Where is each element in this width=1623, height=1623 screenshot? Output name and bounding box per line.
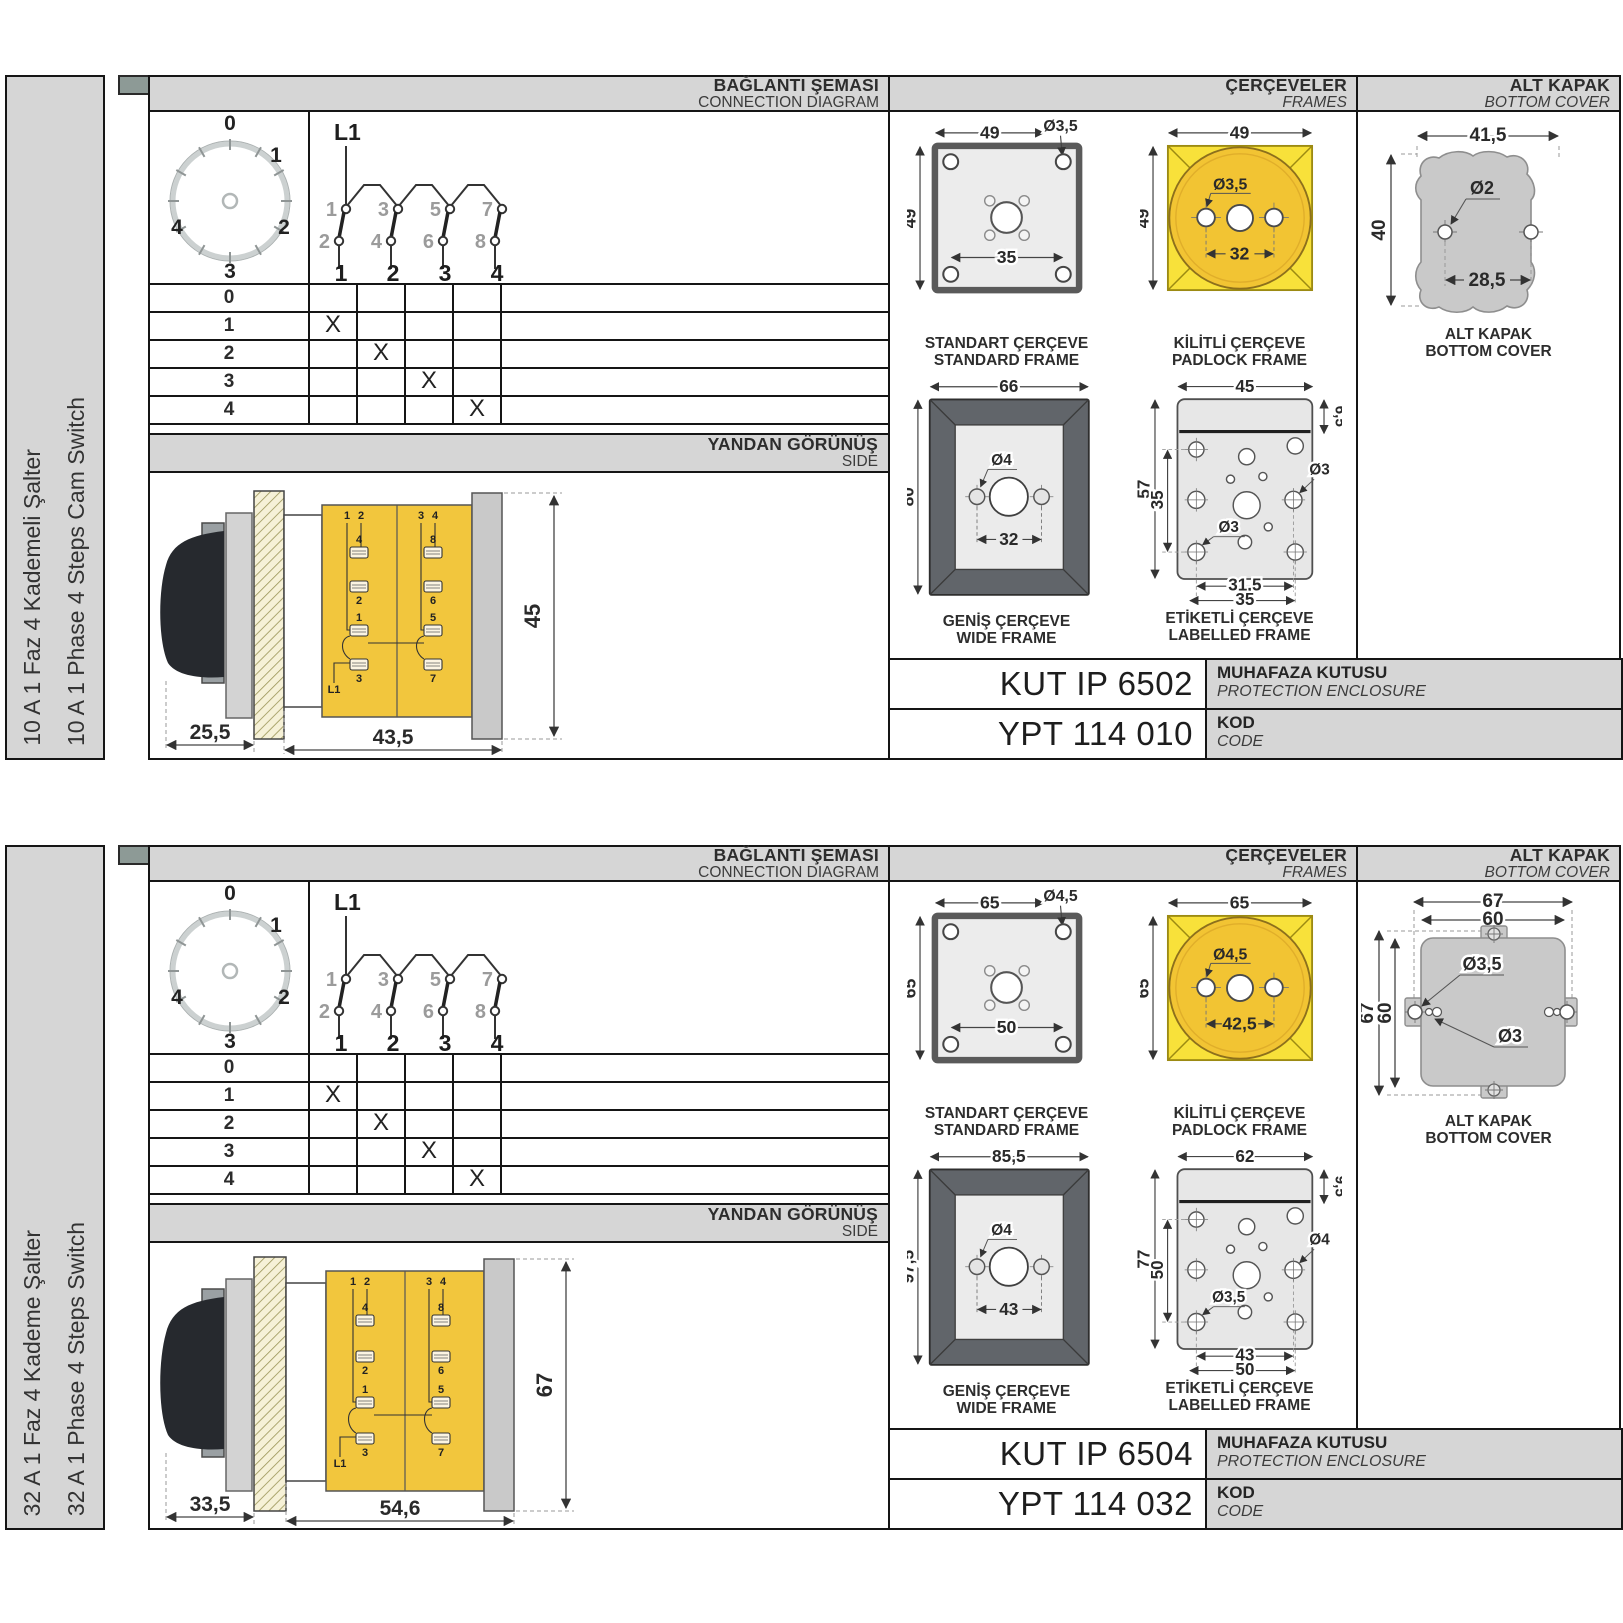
terminal-6: 6 bbox=[423, 1001, 434, 1023]
terminal-8: 8 bbox=[475, 1001, 486, 1023]
caption-tr: KİLİTLİ ÇERÇEVE bbox=[1172, 1105, 1307, 1122]
mark-cell bbox=[358, 313, 406, 339]
enclosure-code: KUT IP 6502 bbox=[888, 658, 1207, 710]
labelled-frame-cell: 62 9,5 77 50 bbox=[1137, 1144, 1342, 1418]
dim-hole-span: 28,5 bbox=[1469, 270, 1506, 291]
dim-hole-label: Ø2 bbox=[1470, 178, 1494, 198]
mark-cell bbox=[454, 313, 502, 339]
mark-cell bbox=[406, 397, 454, 423]
filler-cell bbox=[502, 285, 888, 311]
column-headers: BAĞLANTI ŞEMASI CONNECTION DIAGRAM ÇERÇE… bbox=[148, 845, 1623, 882]
terminal-2: 2 bbox=[319, 1001, 330, 1023]
mark-cell bbox=[310, 341, 358, 367]
mark-cell bbox=[454, 285, 502, 311]
mark-cell bbox=[358, 285, 406, 311]
product-code: YPT 114 010 bbox=[888, 708, 1207, 760]
dim-frame-width: 49 bbox=[1229, 122, 1249, 142]
dim-bottom-2: 50 bbox=[1235, 1360, 1254, 1379]
header-cover-en: BOTTOM COVER bbox=[1485, 865, 1610, 882]
mark-cell bbox=[454, 1139, 502, 1165]
phase-label: L1 bbox=[334, 119, 361, 145]
block-label-l1: L1 bbox=[334, 1458, 347, 1470]
bottom-cover-area: 67 60 67 60 bbox=[1356, 880, 1621, 1430]
product-code-row: YPT 114 010 KOD CODE bbox=[888, 708, 1623, 760]
table-row: 1X bbox=[150, 1083, 888, 1111]
enclosure-code-row: KUT IP 6502 MUHAFAZA KUTUSU PROTECTION E… bbox=[888, 658, 1623, 710]
position-2: 2 bbox=[387, 260, 400, 283]
side-view-area: 1 2 3 4 4 2 1 3 8 6 5 7 L1 bbox=[150, 1243, 888, 1526]
side-view-header: YANDAN GÖRÜNÜŞ SIDE bbox=[150, 1203, 888, 1243]
mark-cell bbox=[406, 1111, 454, 1137]
dim-inner: 32 bbox=[1229, 243, 1249, 263]
dim-top-band: 9,5 bbox=[1332, 1175, 1342, 1197]
filler-cell bbox=[502, 1167, 888, 1193]
connection-diagram-area: 0 1 2 3 4 L1 bbox=[148, 110, 890, 760]
mark-cell bbox=[406, 1083, 454, 1109]
frame-caption: ETİKETLİ ÇERÇEVE LABELLED FRAME bbox=[1165, 610, 1313, 645]
header-conn-tr: BAĞLANTI ŞEMASI bbox=[714, 76, 879, 95]
filler-cell bbox=[502, 397, 888, 423]
dim-inner: 43 bbox=[999, 1298, 1018, 1318]
mark-cell: X bbox=[310, 313, 358, 339]
corner-marker bbox=[118, 845, 150, 865]
header-connection-diagram: BAĞLANTI ŞEMASI CONNECTION DIAGRAM bbox=[148, 845, 890, 882]
terminal-7: 7 bbox=[482, 969, 493, 991]
product-code: YPT 114 032 bbox=[888, 1478, 1207, 1530]
terminal-1: 1 bbox=[326, 969, 337, 991]
block-label: 4 bbox=[356, 534, 363, 546]
mark-cell bbox=[310, 1167, 358, 1193]
mark-cell bbox=[358, 1083, 406, 1109]
block-label: 5 bbox=[430, 612, 436, 624]
caption-en: PADLOCK FRAME bbox=[1172, 352, 1307, 369]
caption-tr: ETİKETLİ ÇERÇEVE bbox=[1165, 1380, 1313, 1397]
dim-hole-span: 35 bbox=[1148, 489, 1167, 508]
terminal-8: 8 bbox=[475, 231, 486, 253]
dim-frame-width: 62 bbox=[1235, 1147, 1254, 1166]
standard-frame-cell: 49 Ø3,5 49 bbox=[907, 118, 1107, 370]
row-label: 0 bbox=[150, 1055, 310, 1081]
column-headers: BAĞLANTI ŞEMASI CONNECTION DIAGRAM ÇERÇE… bbox=[148, 75, 1623, 112]
row-label: 1 bbox=[150, 313, 310, 339]
caption-tr: KİLİTLİ ÇERÇEVE bbox=[1172, 335, 1307, 352]
row-label: 2 bbox=[150, 341, 310, 367]
header-conn-en: CONNECTION DIAGRAM bbox=[698, 865, 879, 882]
filler-cell bbox=[502, 1139, 888, 1165]
block-label: 2 bbox=[362, 1365, 368, 1377]
standard-frame-drawing: 65 Ø4,5 65 bbox=[907, 888, 1107, 1104]
dim-frame-width: 45 bbox=[1235, 377, 1254, 396]
contact-diagram-drawing: L1 bbox=[310, 882, 886, 1053]
section-content: 0 1 2 3 4 L1 bbox=[148, 110, 1623, 760]
dim-cover-height: 40 bbox=[1369, 219, 1390, 240]
standard-frame-cell: 65 Ø4,5 65 bbox=[907, 888, 1107, 1140]
header-frames-en: FRAMES bbox=[1282, 95, 1347, 112]
dim-hole-right: Ø3 bbox=[1309, 461, 1329, 478]
frame-caption: GENİŞ ÇERÇEVE WIDE FRAME bbox=[943, 1383, 1070, 1418]
header-bottom-cover: ALT KAPAK BOTTOM COVER bbox=[1356, 845, 1621, 882]
table-row: 0 bbox=[150, 285, 888, 313]
side-header-en: SIDE bbox=[842, 1224, 878, 1241]
block-label: 7 bbox=[438, 1447, 444, 1459]
product-code-row: YPT 114 032 KOD CODE bbox=[888, 1478, 1623, 1530]
wide-frame-drawing: 85,5 97,5 bbox=[907, 1144, 1107, 1382]
dim-frame-height: 65 bbox=[907, 978, 919, 998]
contact-diagram-drawing: L1 bbox=[310, 112, 886, 283]
caption-en: BOTTOM COVER bbox=[1425, 343, 1551, 360]
header-frames-tr: ÇERÇEVELER bbox=[1225, 76, 1347, 95]
block-label: 1 bbox=[356, 612, 362, 624]
caption-en: PADLOCK FRAME bbox=[1172, 1122, 1307, 1139]
block-label: 7 bbox=[430, 673, 436, 685]
bottom-cover-drawing: 41,5 40 Ø2 bbox=[1361, 120, 1616, 325]
dim-inner: 35 bbox=[996, 247, 1016, 267]
terminal-3: 3 bbox=[378, 199, 389, 221]
position-3: 3 bbox=[439, 260, 452, 283]
position-table: 0 1X 2X 3X 4X bbox=[150, 1055, 888, 1195]
block-label: 2 bbox=[364, 1276, 370, 1288]
corner-marker bbox=[118, 75, 150, 95]
position-4: 4 bbox=[491, 1030, 504, 1053]
dim-hole-label: Ø4,5 bbox=[1043, 888, 1077, 905]
position-1: 1 bbox=[335, 1030, 348, 1053]
filler-cell bbox=[502, 1083, 888, 1109]
side-header-tr: YANDAN GÖRÜNÜŞ bbox=[708, 435, 878, 454]
section-content: 0 1 2 3 4 L1 bbox=[148, 880, 1623, 1530]
position-2: 2 bbox=[387, 1030, 400, 1053]
mark-cell bbox=[454, 1111, 502, 1137]
padlock-frame-drawing: 49 49 Ø3 bbox=[1140, 118, 1340, 334]
header-cover-tr: ALT KAPAK bbox=[1510, 76, 1610, 95]
product-sidebar: 32 A 1 Faz 4 Kademe Şalter 32 A 1 Phase … bbox=[5, 845, 105, 1530]
terminal-3: 3 bbox=[378, 969, 389, 991]
mark-cell: X bbox=[454, 397, 502, 423]
mark-cell bbox=[310, 397, 358, 423]
rotary-dial-box: 0 1 2 3 4 bbox=[150, 112, 310, 283]
row-label: 0 bbox=[150, 285, 310, 311]
dial-label-2: 2 bbox=[278, 216, 290, 239]
table-row: 0 bbox=[150, 1055, 888, 1083]
dim-hole-span: 50 bbox=[1148, 1260, 1167, 1279]
caption-en: STANDARD FRAME bbox=[925, 1122, 1088, 1139]
caption-tr: GENİŞ ÇERÇEVE bbox=[943, 1383, 1070, 1400]
datasheet-page: 10 A 1 Faz 4 Kademeli Şalter 10 A 1 Phas… bbox=[0, 0, 1623, 1623]
caption-tr: ALT KAPAK bbox=[1425, 326, 1551, 343]
row-label: 2 bbox=[150, 1111, 310, 1137]
dial-label-0: 0 bbox=[224, 112, 236, 135]
dim-hole1-label: Ø3,5 bbox=[1462, 954, 1501, 974]
wide-frame-cell: 66 80 bbox=[907, 374, 1107, 648]
block-label: 8 bbox=[430, 534, 436, 546]
dial-label-3: 3 bbox=[224, 260, 236, 283]
row-label: 4 bbox=[150, 1167, 310, 1193]
table-row: 2X bbox=[150, 341, 888, 369]
mark-cell bbox=[406, 1167, 454, 1193]
table-row: 3X bbox=[150, 1139, 888, 1167]
dim-frame-width: 85,5 bbox=[992, 1146, 1026, 1166]
dim-hole-label: Ø4 bbox=[991, 451, 1012, 468]
mark-cell bbox=[310, 1111, 358, 1137]
dim-hole2-label: Ø3 bbox=[1498, 1026, 1522, 1046]
caption-en: WIDE FRAME bbox=[943, 1400, 1070, 1417]
rotary-dial-drawing: 0 1 2 3 4 bbox=[150, 112, 310, 283]
product-section-32a: 32 A 1 Faz 4 Kademe Şalter 32 A 1 Phase … bbox=[5, 845, 1623, 1530]
mark-cell bbox=[454, 341, 502, 367]
mark-cell bbox=[358, 1055, 406, 1081]
diagram-row: 0 1 2 3 4 L1 bbox=[150, 882, 888, 1055]
cover-caption: ALT KAPAK BOTTOM COVER bbox=[1425, 326, 1551, 361]
block-label: 4 bbox=[440, 1276, 447, 1288]
side-view-drawing: 1 2 3 4 4 2 1 3 8 6 5 7 L1 bbox=[150, 473, 888, 756]
code-label-tr: KOD bbox=[1217, 1483, 1621, 1503]
bottom-cover-drawing: 67 60 67 60 bbox=[1361, 890, 1616, 1112]
enclosure-label-en: PROTECTION ENCLOSURE bbox=[1217, 683, 1621, 701]
dial-label-1: 1 bbox=[270, 914, 282, 937]
caption-en: STANDARD FRAME bbox=[925, 352, 1088, 369]
mark-cell: X bbox=[358, 341, 406, 367]
dial-label-2: 2 bbox=[278, 986, 290, 1009]
header-frames: ÇERÇEVELER FRAMES bbox=[888, 845, 1358, 882]
header-conn-tr: BAĞLANTI ŞEMASI bbox=[714, 846, 879, 865]
header-cover-en: BOTTOM COVER bbox=[1485, 95, 1610, 112]
right-columns: 65 Ø4,5 65 bbox=[888, 880, 1623, 1530]
block-label: 1 bbox=[362, 1384, 368, 1396]
standard-frame-drawing: 49 Ø3,5 49 bbox=[907, 118, 1107, 334]
enclosure-code-row: KUT IP 6504 MUHAFAZA KUTUSU PROTECTION E… bbox=[888, 1428, 1623, 1480]
code-label-tr: KOD bbox=[1217, 713, 1621, 733]
dim-frame-width: 65 bbox=[1229, 892, 1249, 912]
caption-tr: GENİŞ ÇERÇEVE bbox=[943, 613, 1070, 630]
block-label: 6 bbox=[438, 1365, 444, 1377]
block-label: 3 bbox=[362, 1447, 368, 1459]
frame-caption: ETİKETLİ ÇERÇEVE LABELLED FRAME bbox=[1165, 1380, 1313, 1415]
mark-cell: X bbox=[310, 1083, 358, 1109]
code-label-en: CODE bbox=[1217, 733, 1621, 751]
side-header-en: SIDE bbox=[842, 454, 878, 471]
frame-caption: KİLİTLİ ÇERÇEVE PADLOCK FRAME bbox=[1172, 1105, 1307, 1140]
terminal-2: 2 bbox=[319, 231, 330, 253]
dial-label-1: 1 bbox=[270, 144, 282, 167]
section-main: BAĞLANTI ŞEMASI CONNECTION DIAGRAM ÇERÇE… bbox=[148, 75, 1623, 760]
filler-cell bbox=[502, 1111, 888, 1137]
header-connection-diagram: BAĞLANTI ŞEMASI CONNECTION DIAGRAM bbox=[148, 75, 890, 112]
cover-caption: ALT KAPAK BOTTOM COVER bbox=[1425, 1113, 1551, 1148]
block-label: 3 bbox=[356, 673, 362, 685]
header-bottom-cover: ALT KAPAK BOTTOM COVER bbox=[1356, 75, 1621, 112]
frame-caption: STANDART ÇERÇEVE STANDARD FRAME bbox=[925, 335, 1088, 370]
mark-cell bbox=[310, 1055, 358, 1081]
dim-hole-label: Ø4 bbox=[991, 1221, 1012, 1238]
table-row: 4X bbox=[150, 397, 888, 425]
filler-cell bbox=[502, 1055, 888, 1081]
caption-tr: ETİKETLİ ÇERÇEVE bbox=[1165, 610, 1313, 627]
frame-caption: KİLİTLİ ÇERÇEVE PADLOCK FRAME bbox=[1172, 335, 1307, 370]
header-frames-tr: ÇERÇEVELER bbox=[1225, 846, 1347, 865]
side-view-area: 1 2 3 4 4 2 1 3 8 6 5 7 L1 bbox=[150, 473, 888, 756]
bottom-cover-area: 41,5 40 Ø2 bbox=[1356, 110, 1621, 660]
code-label-en: CODE bbox=[1217, 1503, 1621, 1521]
row-label: 4 bbox=[150, 397, 310, 423]
dim-hole-bottom: Ø3,5 bbox=[1212, 1289, 1246, 1306]
side-view-drawing: 1 2 3 4 4 2 1 3 8 6 5 7 L1 bbox=[150, 1243, 888, 1526]
mark-cell bbox=[454, 1083, 502, 1109]
block-label-l1: L1 bbox=[328, 684, 341, 696]
mark-cell: X bbox=[406, 369, 454, 395]
dim-hole-right: Ø4 bbox=[1309, 1231, 1330, 1248]
dim-frame-height: 97,5 bbox=[907, 1249, 917, 1283]
header-cover-tr: ALT KAPAK bbox=[1510, 846, 1610, 865]
filler-cell bbox=[502, 313, 888, 339]
block-label: 2 bbox=[356, 595, 362, 607]
terminal-1: 1 bbox=[326, 199, 337, 221]
product-name-en: 32 A 1 Phase 4 Steps Switch bbox=[63, 1222, 90, 1516]
diagram-row: 0 1 2 3 4 L1 bbox=[150, 112, 888, 285]
dim-handle: 33,5 bbox=[190, 1493, 231, 1516]
block-label: 2 bbox=[358, 510, 364, 522]
dim-frame-width: 49 bbox=[979, 122, 999, 142]
terminal-5: 5 bbox=[430, 199, 441, 221]
frame-caption: GENİŞ ÇERÇEVE WIDE FRAME bbox=[943, 613, 1070, 648]
connection-diagram-area: 0 1 2 3 4 L1 bbox=[148, 880, 890, 1530]
mark-cell: X bbox=[454, 1167, 502, 1193]
block-label: 3 bbox=[418, 510, 424, 522]
dim-bottom-2: 35 bbox=[1235, 590, 1254, 609]
mark-cell bbox=[406, 1055, 454, 1081]
table-row: 4X bbox=[150, 1167, 888, 1195]
dim-height: 45 bbox=[520, 604, 545, 628]
section-main: BAĞLANTI ŞEMASI CONNECTION DIAGRAM ÇERÇE… bbox=[148, 845, 1623, 1530]
mark-cell bbox=[358, 1167, 406, 1193]
dim-body: 54,6 bbox=[380, 1497, 421, 1520]
wide-frame-drawing: 66 80 bbox=[907, 374, 1107, 612]
caption-tr: STANDART ÇERÇEVE bbox=[925, 335, 1088, 352]
dim-body: 43,5 bbox=[373, 726, 414, 749]
dim-inner: 32 bbox=[999, 528, 1018, 548]
position-table: 0 1X 2X 3X 4X bbox=[150, 285, 888, 425]
product-name-en: 10 A 1 Phase 4 Steps Cam Switch bbox=[63, 397, 90, 746]
dim-inner: 50 bbox=[996, 1017, 1016, 1037]
contact-diagram-box: L1 bbox=[310, 882, 888, 1053]
dial-label-0: 0 bbox=[224, 882, 236, 905]
dim-hole-label: Ø3,5 bbox=[1043, 118, 1077, 135]
labelled-frame-drawing: 62 9,5 77 50 bbox=[1137, 1144, 1342, 1380]
terminal-7: 7 bbox=[482, 199, 493, 221]
filler-cell bbox=[502, 369, 888, 395]
row-label: 1 bbox=[150, 1083, 310, 1109]
block-label: 8 bbox=[438, 1302, 444, 1314]
terminal-6: 6 bbox=[423, 231, 434, 253]
mark-cell bbox=[358, 369, 406, 395]
mark-cell bbox=[358, 1139, 406, 1165]
block-label: 3 bbox=[426, 1276, 432, 1288]
labelled-frame-drawing: 45 6,5 57 35 bbox=[1137, 374, 1342, 610]
row-label: 3 bbox=[150, 369, 310, 395]
table-row: 3X bbox=[150, 369, 888, 397]
rotary-dial-drawing: 0 1 2 3 4 bbox=[150, 882, 310, 1053]
dim-frame-height: 49 bbox=[1140, 208, 1152, 228]
dim-hole-bottom: Ø3 bbox=[1219, 519, 1239, 536]
header-frames: ÇERÇEVELER FRAMES bbox=[888, 75, 1358, 112]
filler-cell bbox=[502, 341, 888, 367]
terminal-4: 4 bbox=[371, 231, 383, 253]
product-name-tr: 32 A 1 Faz 4 Kademe Şalter bbox=[19, 1230, 46, 1516]
enclosure-label: MUHAFAZA KUTUSU PROTECTION ENCLOSURE bbox=[1205, 1428, 1623, 1480]
mark-cell bbox=[310, 369, 358, 395]
dial-label-3: 3 bbox=[224, 1030, 236, 1053]
dial-label-4: 4 bbox=[171, 216, 183, 239]
mark-cell bbox=[406, 285, 454, 311]
table-row: 1X bbox=[150, 313, 888, 341]
position-3: 3 bbox=[439, 1030, 452, 1053]
dim-cover-h2: 60 bbox=[1375, 1002, 1396, 1023]
header-frames-en: FRAMES bbox=[1282, 865, 1347, 882]
right-columns: 49 Ø3,5 49 bbox=[888, 110, 1623, 760]
rotary-dial-box: 0 1 2 3 4 bbox=[150, 882, 310, 1053]
wide-frame-cell: 85,5 97,5 bbox=[907, 1144, 1107, 1418]
frame-caption: STANDART ÇERÇEVE STANDARD FRAME bbox=[925, 1105, 1088, 1140]
row-label: 3 bbox=[150, 1139, 310, 1165]
caption-en: LABELLED FRAME bbox=[1165, 627, 1313, 644]
code-label: KOD CODE bbox=[1205, 1478, 1623, 1530]
product-name-tr: 10 A 1 Faz 4 Kademeli Şalter bbox=[19, 449, 46, 746]
header-conn-en: CONNECTION DIAGRAM bbox=[698, 95, 879, 112]
block-label: 4 bbox=[432, 510, 439, 522]
block-label: 1 bbox=[344, 510, 350, 522]
side-header-tr: YANDAN GÖRÜNÜŞ bbox=[708, 1205, 878, 1224]
padlock-frame-drawing: 65 65 Ø4 bbox=[1140, 888, 1340, 1104]
frames-area: 49 Ø3,5 49 bbox=[888, 110, 1358, 660]
dim-frame-height: 65 bbox=[1140, 978, 1152, 998]
enclosure-label-tr: MUHAFAZA KUTUSU bbox=[1217, 1433, 1621, 1453]
position-4: 4 bbox=[491, 260, 504, 283]
phase-label: L1 bbox=[334, 889, 361, 915]
dim-height: 67 bbox=[532, 1373, 557, 1397]
frames-area: 65 Ø4,5 65 bbox=[888, 880, 1358, 1430]
labelled-frame-cell: 45 6,5 57 35 bbox=[1137, 374, 1342, 648]
enclosure-label-en: PROTECTION ENCLOSURE bbox=[1217, 1453, 1621, 1471]
mark-cell bbox=[406, 341, 454, 367]
padlock-frame-cell: 65 65 Ø4 bbox=[1140, 888, 1340, 1140]
mark-cell bbox=[406, 313, 454, 339]
caption-en: WIDE FRAME bbox=[943, 630, 1070, 647]
dim-frame-height: 80 bbox=[907, 487, 917, 506]
terminal-4: 4 bbox=[371, 1001, 383, 1023]
mark-cell bbox=[310, 1139, 358, 1165]
mark-cell bbox=[310, 285, 358, 311]
enclosure-code: KUT IP 6504 bbox=[888, 1428, 1207, 1480]
enclosure-label: MUHAFAZA KUTUSU PROTECTION ENCLOSURE bbox=[1205, 658, 1623, 710]
dim-handle: 25,5 bbox=[190, 721, 231, 744]
block-label: 5 bbox=[438, 1384, 444, 1396]
block-label: 1 bbox=[350, 1276, 356, 1288]
padlock-frame-cell: 49 49 Ø3 bbox=[1140, 118, 1340, 370]
contact-diagram-box: L1 bbox=[310, 112, 888, 283]
dim-top-band: 6,5 bbox=[1332, 405, 1342, 427]
dim-hole-label: Ø3,5 bbox=[1213, 177, 1247, 194]
position-1: 1 bbox=[335, 260, 348, 283]
dim-cover-width: 41,5 bbox=[1470, 125, 1507, 146]
product-sidebar: 10 A 1 Faz 4 Kademeli Şalter 10 A 1 Phas… bbox=[5, 75, 105, 760]
dim-frame-height: 49 bbox=[907, 208, 919, 228]
caption-en: BOTTOM COVER bbox=[1425, 1130, 1551, 1147]
dim-inner: 42,5 bbox=[1222, 1013, 1257, 1033]
dial-label-4: 4 bbox=[171, 986, 183, 1009]
code-label: KOD CODE bbox=[1205, 708, 1623, 760]
mark-cell: X bbox=[406, 1139, 454, 1165]
terminal-5: 5 bbox=[430, 969, 441, 991]
block-label: 4 bbox=[362, 1302, 369, 1314]
caption-en: LABELLED FRAME bbox=[1165, 1397, 1313, 1414]
